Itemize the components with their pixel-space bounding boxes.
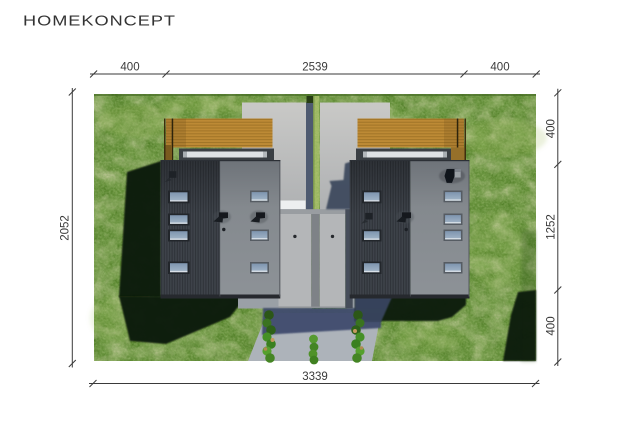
svg-text:400: 400 <box>545 119 557 138</box>
svg-text:1252: 1252 <box>545 214 557 240</box>
svg-text:3339: 3339 <box>302 371 328 383</box>
svg-text:2052: 2052 <box>60 215 72 241</box>
svg-text:2539: 2539 <box>302 62 328 74</box>
svg-text:400: 400 <box>545 316 557 335</box>
svg-text:400: 400 <box>490 62 509 74</box>
svg-text:400: 400 <box>120 62 139 74</box>
svg-text:HOMEKONCEPT: HOMEKONCEPT <box>23 13 176 30</box>
